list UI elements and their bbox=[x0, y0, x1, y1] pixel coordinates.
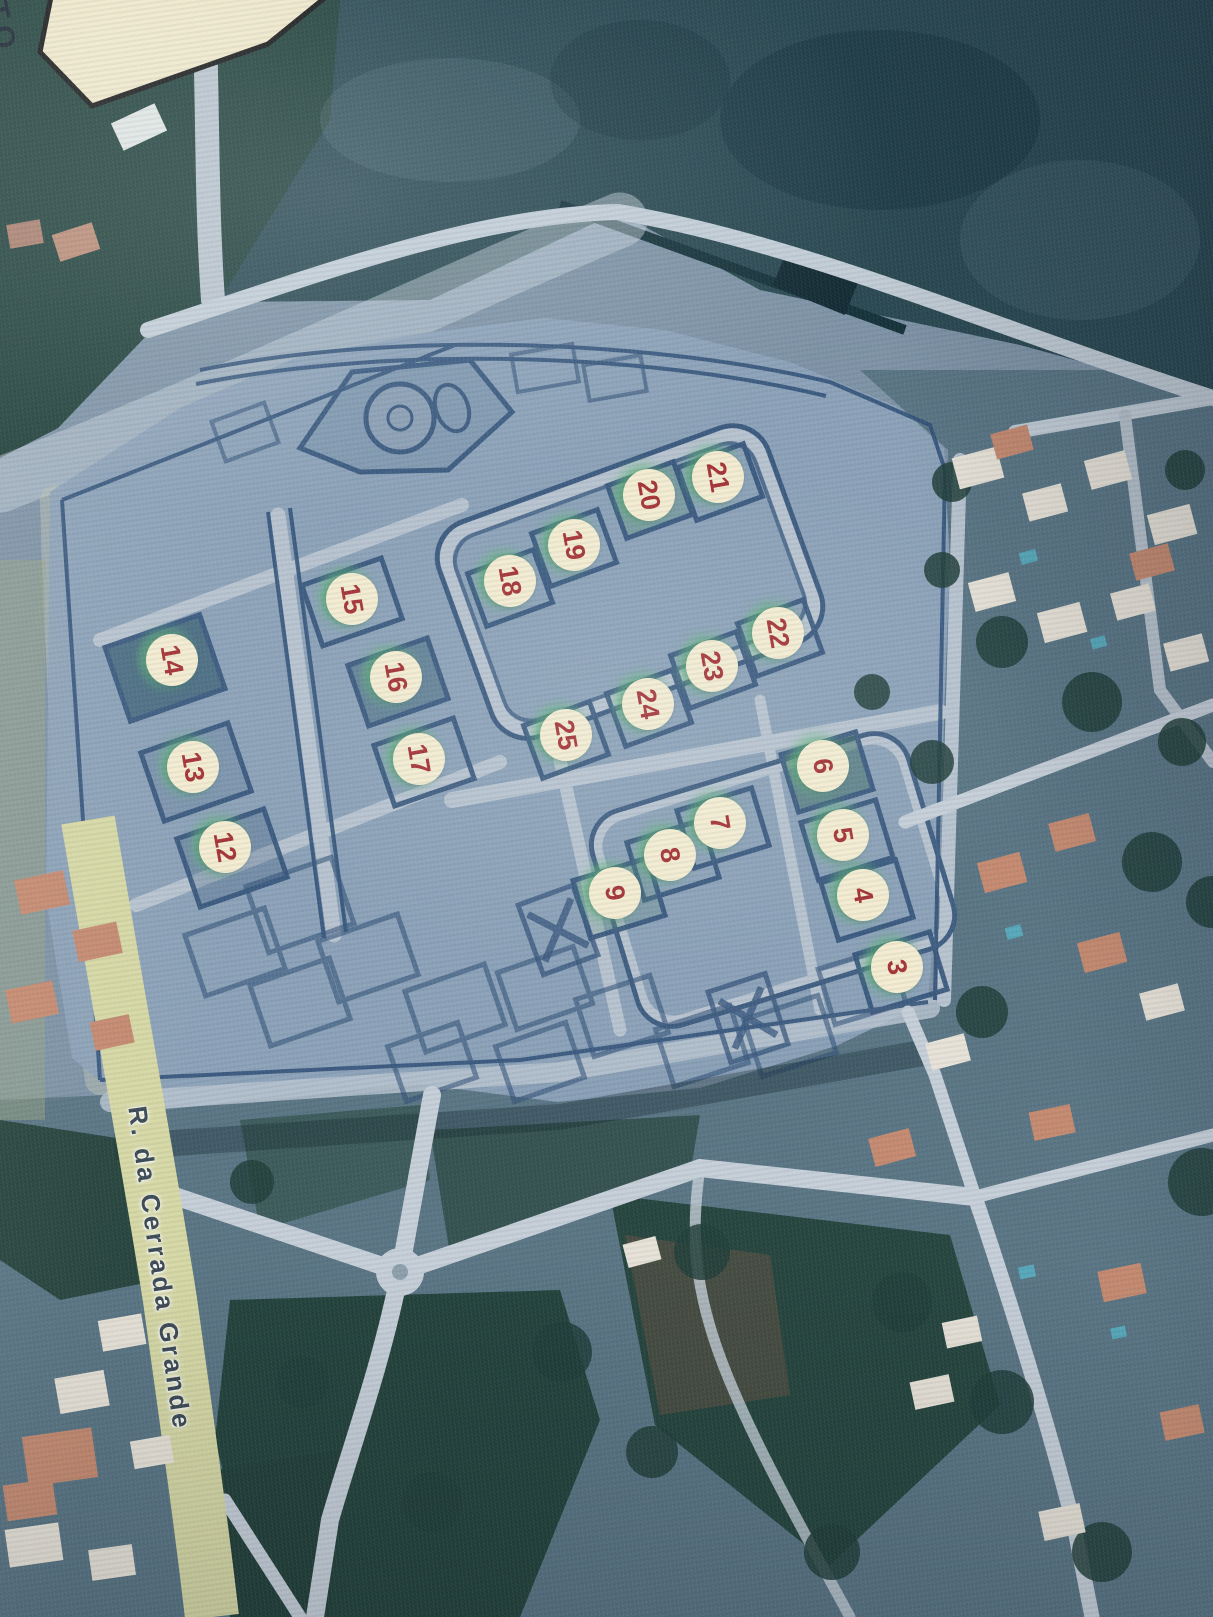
lot-marker-number: 25 bbox=[550, 718, 582, 752]
lot-marker-number: 9 bbox=[600, 883, 629, 902]
lot-marker-number: 12 bbox=[209, 830, 241, 864]
lot-marker-number: 23 bbox=[696, 649, 728, 683]
lot-marker-number: 6 bbox=[808, 756, 837, 775]
lot-marker-number: 16 bbox=[380, 660, 412, 694]
lot-marker-number: 21 bbox=[702, 460, 734, 494]
lot-marker-number: 14 bbox=[156, 643, 188, 677]
aerial-photo: TO R. da Cerrada Grande 3456789121314151… bbox=[0, 0, 1213, 1617]
lot-marker-number: 17 bbox=[403, 742, 435, 776]
lot-marker-number: 7 bbox=[705, 813, 734, 832]
lot-marker-number: 22 bbox=[762, 616, 794, 650]
lot-marker-number: 13 bbox=[177, 750, 209, 784]
lot-marker-number: 19 bbox=[558, 528, 590, 562]
lot-marker-number: 3 bbox=[882, 957, 911, 976]
lot-marker-number: 24 bbox=[632, 687, 664, 721]
lot-marker-number: 4 bbox=[848, 885, 877, 904]
lot-marker-number: 5 bbox=[828, 825, 857, 844]
lot-marker-number: 15 bbox=[336, 582, 368, 616]
lot-marker-number: 8 bbox=[655, 845, 684, 864]
lot-marker-number: 18 bbox=[494, 564, 526, 598]
development-plat bbox=[46, 318, 964, 1112]
lot-marker-number: 20 bbox=[633, 478, 665, 512]
